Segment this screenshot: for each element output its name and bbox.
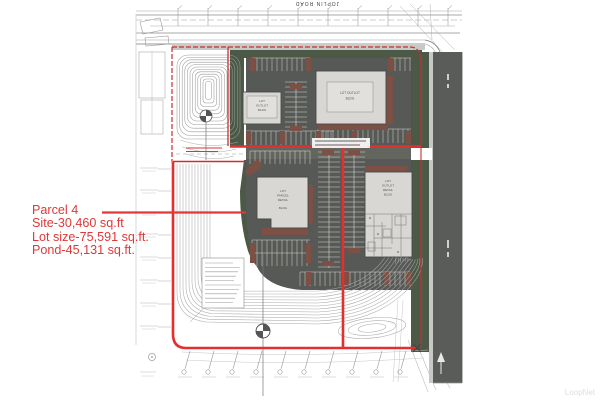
building-label: LOT: [280, 189, 286, 193]
building-east: LOT OUTLOT RETAIL BLDG: [365, 166, 412, 257]
west-entrance-drive: [174, 147, 246, 160]
building-outlot-a: LOT OUTLOT BLDG: [243, 92, 281, 124]
svg-text:BLDG: BLDG: [384, 193, 393, 197]
svg-text:BLDG: BLDG: [346, 97, 355, 101]
existing-sidewalk-outlines: [136, 14, 169, 376]
top-road: [136, 4, 462, 58]
svg-text:PARCEL: PARCEL: [277, 194, 289, 198]
svg-text:RETAIL: RETAIL: [383, 188, 394, 192]
road-station-mark: [447, 74, 449, 80]
building-label: LOT: [259, 99, 265, 103]
svg-text:OUTLOT: OUTLOT: [256, 104, 268, 108]
west-boundary-line: [173, 162, 186, 348]
svg-text:RETAIL: RETAIL: [278, 198, 289, 202]
parcel-annotation-pond: Pond-45,131 sq.ft.: [32, 244, 149, 257]
building-label: LOT OUTLOT: [340, 91, 360, 95]
site-plan-drawing: LOT OUTLOT BLDG LOT OUTLOT BLDG LOT PARC…: [0, 0, 600, 400]
svg-text:BLDG: BLDG: [258, 108, 267, 112]
parcel-annotation: Parcel 4 Site-30,460 sq.ft Lot size-75,5…: [32, 204, 149, 258]
east-road: [429, 52, 463, 383]
easement-note: [312, 138, 370, 148]
watermark: LoopNet: [565, 388, 595, 397]
parcel-annotation-title: Parcel 4: [32, 204, 149, 217]
parcel-annotation-site: Site-30,460 sq.ft: [32, 217, 149, 230]
top-road-label: JOPLIN ROAD: [295, 0, 339, 6]
site-plan-screenshot: LOT OUTLOT BLDG LOT OUTLOT BLDG LOT PARC…: [0, 0, 600, 400]
building-label: LOT: [385, 179, 391, 183]
svg-text:BLDG: BLDG: [279, 206, 288, 210]
svg-text:OUTLOT: OUTLOT: [382, 184, 394, 188]
parcel-annotation-lot: Lot size-75,591 sq.ft.: [32, 231, 149, 244]
building-outlot-b: LOT OUTLOT BLDG: [316, 71, 393, 130]
